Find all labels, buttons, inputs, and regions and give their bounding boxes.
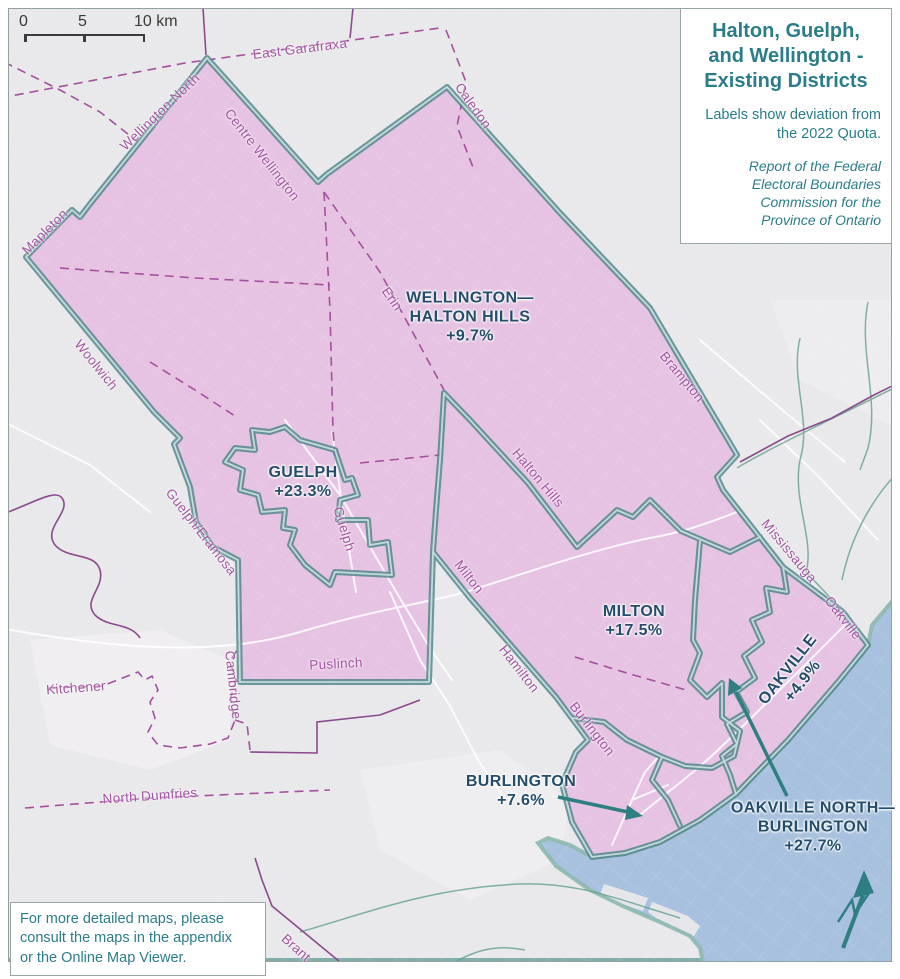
scale-label-10: 10 km xyxy=(134,13,178,31)
note-line: or the Online Map Viewer. xyxy=(20,949,256,968)
scale-bar-rule xyxy=(24,34,145,44)
map-subtitle: Labels show deviation from the 2022 Quot… xyxy=(691,106,881,144)
scale-label-5: 5 xyxy=(78,13,87,31)
scale-bar: 0 5 10 km xyxy=(22,13,197,44)
note-box: For more detailed maps, please consult t… xyxy=(10,902,266,976)
map-title: Halton, Guelph, and Wellington - Existin… xyxy=(691,19,881,94)
map-attribution: Report of the Federal Electoral Boundari… xyxy=(691,157,881,230)
title-box: Halton, Guelph, and Wellington - Existin… xyxy=(680,8,892,244)
note-line: consult the maps in the appendix xyxy=(20,929,256,948)
note-line: For more detailed maps, please xyxy=(20,910,256,929)
map-sheet: East GarafraxaCaledonWellington NorthCen… xyxy=(0,0,900,979)
scale-label-0: 0 xyxy=(19,13,28,31)
